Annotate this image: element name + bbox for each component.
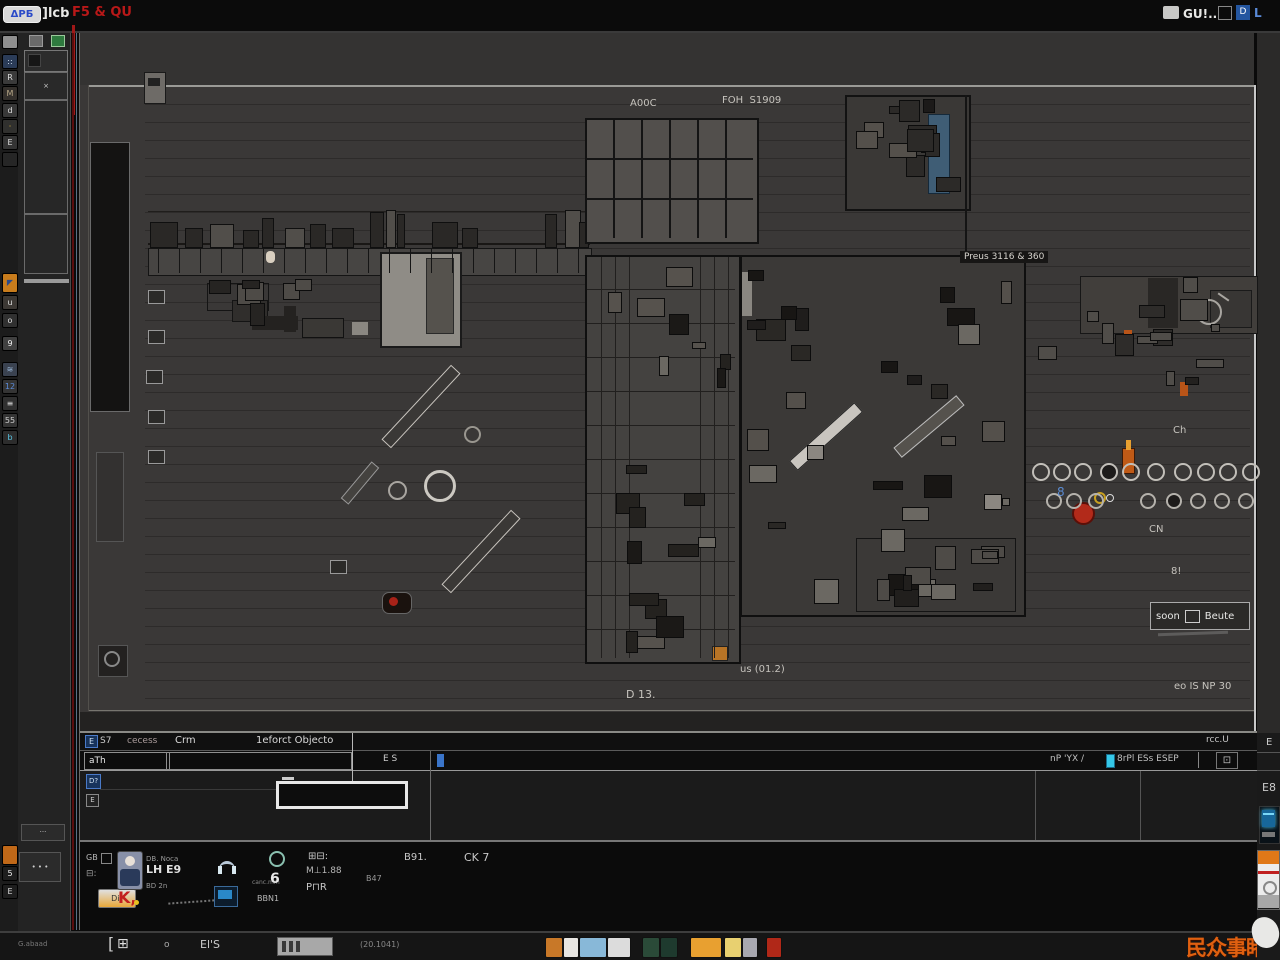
- screen-base: [1262, 832, 1275, 837]
- right-strip-e8: E8: [1262, 781, 1276, 794]
- banner-red-line: [1258, 871, 1279, 874]
- banner-footer: [1258, 895, 1279, 908]
- taskbar-app-icon[interactable]: [563, 937, 579, 958]
- right-strip-divider-2: [1257, 770, 1280, 771]
- taskbar-apps-layer: [0, 0, 1280, 960]
- taskbar-app-icon[interactable]: [579, 937, 607, 958]
- taskbar-app-icon[interactable]: [724, 937, 742, 958]
- app-window: ΔPБ ]lcb F5 & QU GU!.. D L A00CFOH S1909…: [0, 0, 1280, 960]
- banner-ring: [1263, 881, 1277, 895]
- right-strip-divider-1: [1257, 752, 1280, 753]
- banner-widget[interactable]: [1257, 850, 1280, 910]
- taskbar-app-icon[interactable]: [766, 937, 782, 958]
- taskbar-app-icon[interactable]: [690, 937, 722, 958]
- taskbar-app-icon[interactable]: [660, 937, 678, 958]
- taskbar-app-icon[interactable]: [642, 937, 660, 958]
- taskbar-app-icon[interactable]: [742, 937, 758, 958]
- screen-glow-line: [1263, 813, 1274, 815]
- taskbar-app-icon[interactable]: [545, 937, 563, 958]
- taskbar-app-icon[interactable]: [607, 937, 631, 958]
- right-strip-e: E: [1266, 737, 1272, 748]
- screen-widget-icon[interactable]: [1259, 806, 1280, 844]
- banner-top: [1258, 851, 1279, 864]
